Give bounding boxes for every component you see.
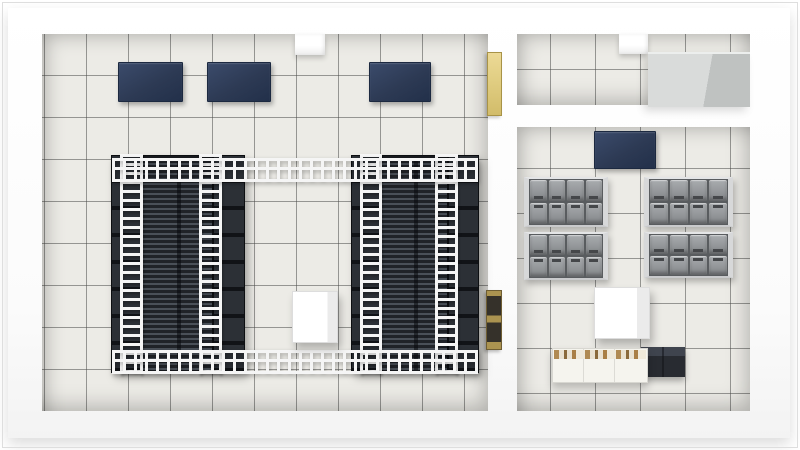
- server-rack-row-left: [112, 156, 244, 372]
- battery-modules: [530, 180, 602, 224]
- battery-module: [650, 203, 668, 224]
- battery-module: [586, 180, 603, 201]
- electrical-panel-lower: [486, 290, 502, 350]
- battery-module: [690, 235, 708, 254]
- battery-module: [567, 203, 584, 224]
- battery-module: [549, 235, 566, 255]
- battery-rack-2: [644, 177, 733, 227]
- battery-modules: [650, 235, 727, 275]
- battery-modules: [650, 180, 727, 224]
- cable-tray-vertical: [360, 154, 382, 374]
- battery-module: [586, 257, 603, 277]
- battery-module: [586, 203, 603, 224]
- crate-contents: [554, 350, 646, 359]
- battery-module: [670, 256, 688, 275]
- battery-modules: [530, 235, 602, 277]
- battery-rack-4: [644, 232, 733, 278]
- battery-module: [709, 203, 727, 224]
- battery-module: [586, 235, 603, 255]
- floor-unit-main-room: [292, 291, 338, 343]
- cable-tray-top: [112, 158, 478, 182]
- ac-unit-3: [369, 62, 431, 102]
- floor-plan: [0, 0, 800, 450]
- server-rack-row-right: [352, 156, 478, 372]
- battery-module: [650, 235, 668, 254]
- battery-module: [530, 180, 547, 201]
- battery-module: [567, 257, 584, 277]
- ac-unit-1: [118, 62, 183, 102]
- battery-module: [549, 203, 566, 224]
- battery-module: [690, 203, 708, 224]
- air-handler-unit: [648, 52, 750, 107]
- datacenter-floorplan-render: [0, 0, 800, 450]
- battery-rack-3: [524, 232, 608, 280]
- battery-module: [530, 203, 547, 224]
- wall-column-utility-room: [619, 34, 648, 54]
- battery-module: [549, 180, 566, 201]
- battery-module: [690, 180, 708, 201]
- cable-tray-vertical: [120, 154, 143, 374]
- storage-cube: [594, 287, 650, 339]
- battery-module: [670, 235, 688, 254]
- battery-module: [650, 256, 668, 275]
- electrical-panel-upper: [487, 52, 502, 116]
- battery-module: [709, 235, 727, 254]
- storage-crates: [552, 348, 648, 383]
- battery-module: [670, 203, 688, 224]
- battery-module: [530, 257, 547, 277]
- battery-module: [650, 180, 668, 201]
- cable-tray-vertical: [199, 154, 222, 374]
- battery-module: [670, 180, 688, 201]
- battery-module: [530, 235, 547, 255]
- battery-module: [709, 180, 727, 201]
- battery-module: [567, 180, 584, 201]
- ac-unit-2: [207, 62, 271, 102]
- battery-module: [709, 256, 727, 275]
- ac-unit-4: [594, 131, 656, 169]
- battery-rack-1: [524, 177, 608, 227]
- battery-module: [567, 235, 584, 255]
- cable-tray-bottom: [112, 350, 478, 374]
- cable-tray-vertical: [435, 154, 457, 374]
- wall-column-main-room: [295, 34, 325, 55]
- battery-module: [549, 257, 566, 277]
- battery-module: [690, 256, 708, 275]
